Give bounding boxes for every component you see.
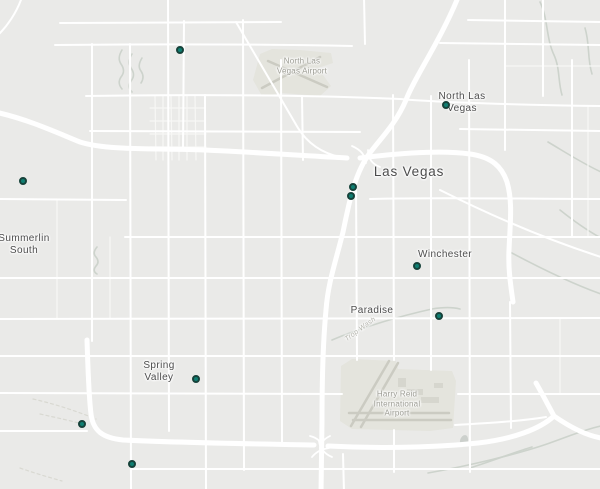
map-marker[interactable] [435,312,443,320]
airport-areas [253,49,456,431]
map-marker[interactable] [19,177,27,185]
map-marker[interactable] [347,192,355,200]
freeway-us95-west [0,112,347,158]
map-canvas[interactable]: North Las Vegas AirportNorth Las VegasLa… [0,0,600,489]
map-marker[interactable] [128,460,136,468]
minor-road-layer [57,66,600,393]
freeway-us95-east [360,152,513,302]
map-marker[interactable] [78,420,86,428]
freeway-515-spur [536,383,554,416]
map-marker[interactable] [349,183,357,191]
map-marker[interactable] [192,375,200,383]
basemap-layer [0,0,600,489]
map-marker[interactable] [413,262,421,270]
map-marker[interactable] [442,101,450,109]
map-marker[interactable] [176,46,184,54]
